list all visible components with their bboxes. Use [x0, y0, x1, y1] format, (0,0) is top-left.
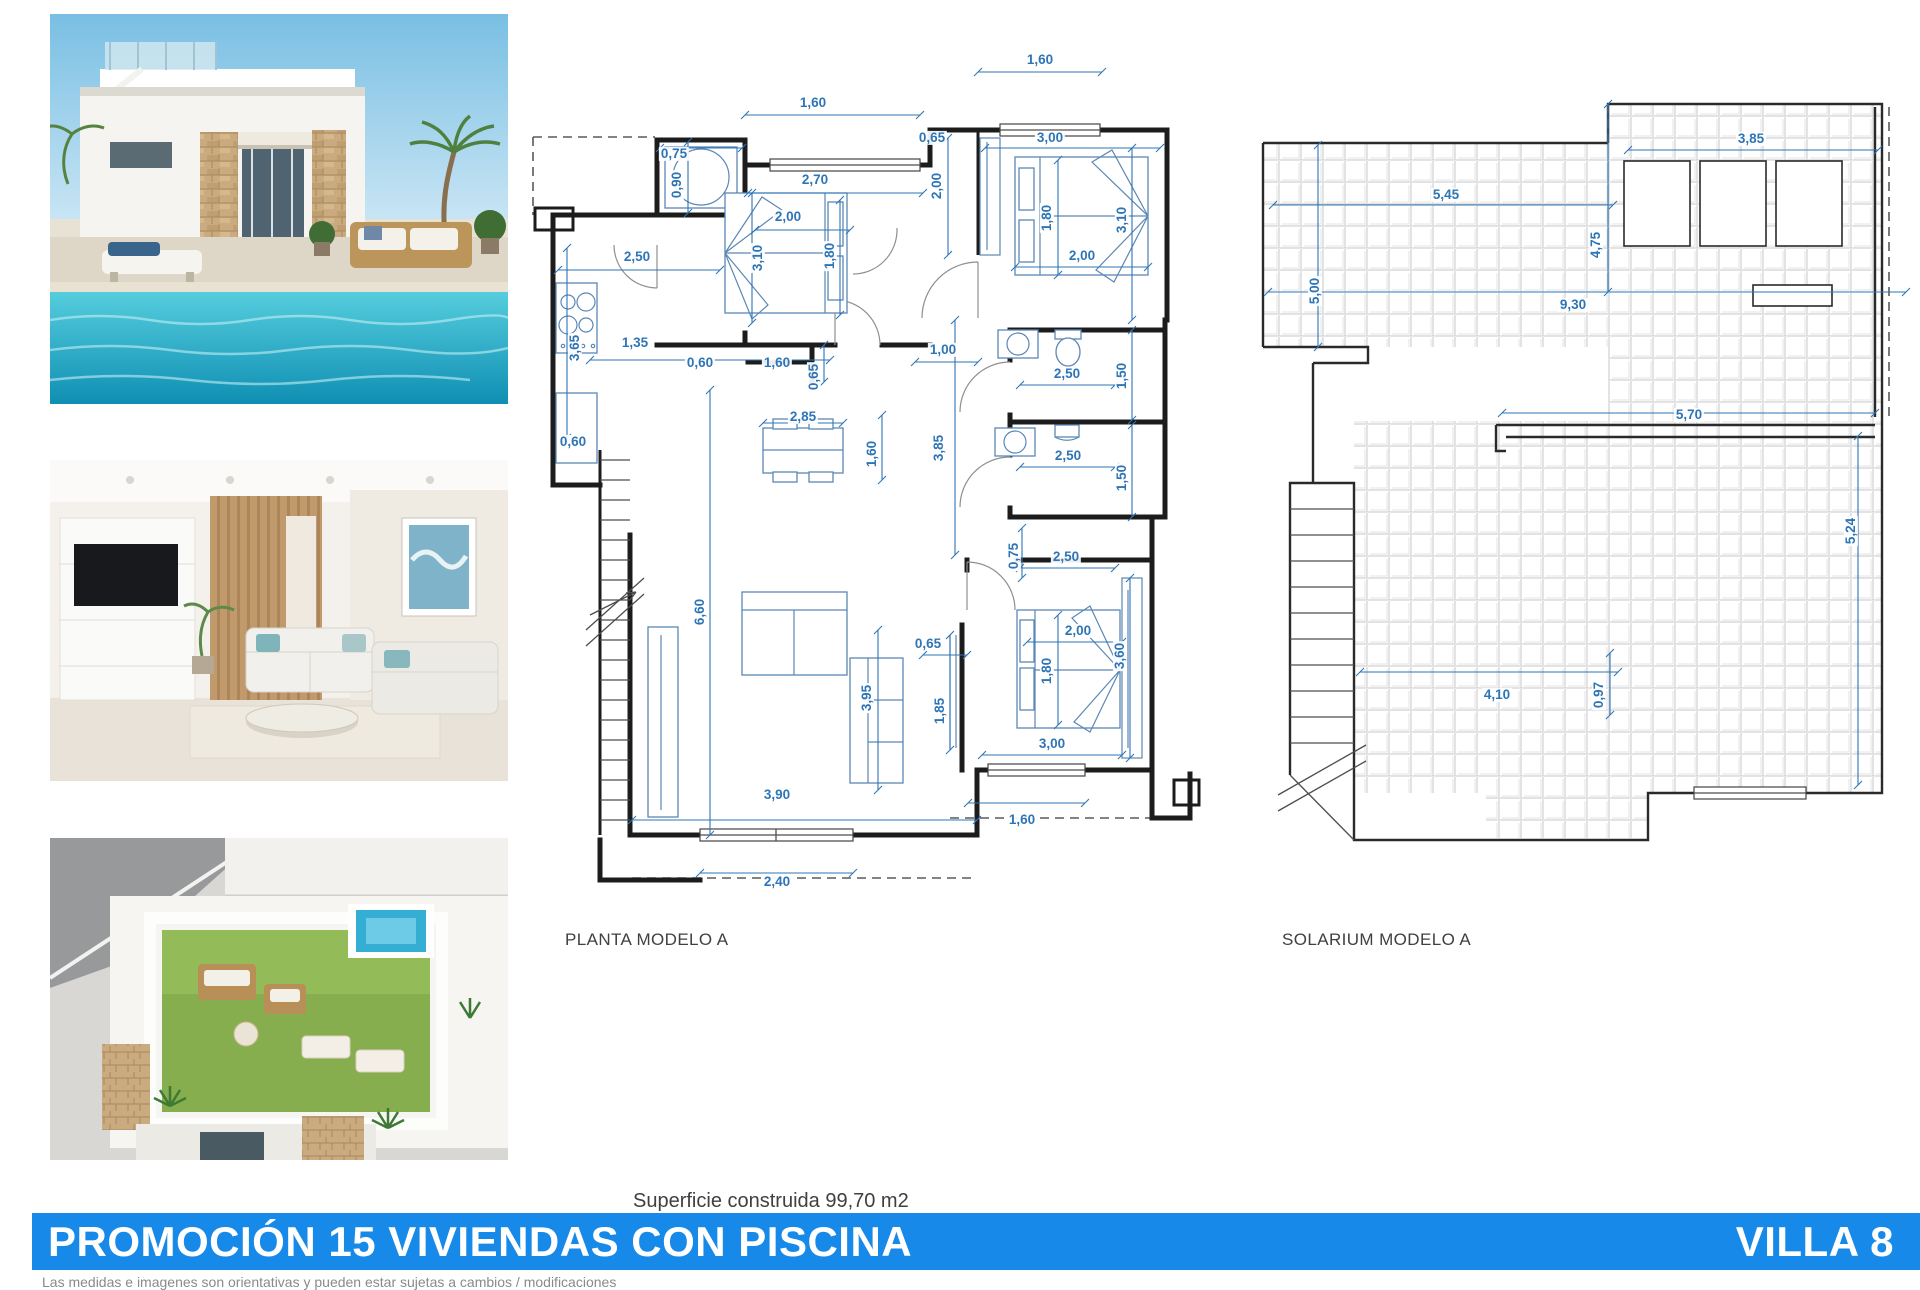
footer-bar: PROMOCIÓN 15 VIVIENDAS CON PISCINA VILLA… [32, 1213, 1920, 1270]
floor-plan-solarium: 3,855,454,755,009,305,705,244,100,97 [1258, 95, 1918, 870]
planta-caption: PLANTA MODELO A [565, 930, 728, 950]
villa-number: VILLA 8 [1736, 1218, 1894, 1266]
floor-plan-drawing [530, 30, 1220, 930]
photo-villa-exterior-pool [50, 14, 508, 404]
built-surface-note: Superficie construida 99,70 m2 [633, 1190, 909, 1213]
photo-rooftop-aerial [50, 838, 508, 1160]
promotion-title: PROMOCIÓN 15 VIVIENDAS CON PISCINA [48, 1218, 912, 1266]
floor-plan-planta: 1,600,750,902,702,003,101,802,503,651,35… [530, 30, 1220, 930]
rooftop-aerial-illustration [50, 838, 508, 1160]
living-room-illustration [50, 460, 508, 781]
photo-living-room-interior [50, 460, 508, 781]
solarium-caption: SOLARIUM MODELO A [1282, 930, 1471, 950]
solarium-plan-drawing [1258, 95, 1918, 870]
villa-exterior-illustration [50, 14, 508, 404]
disclaimer-text: Las medidas e imagenes son orientativas … [42, 1274, 616, 1290]
